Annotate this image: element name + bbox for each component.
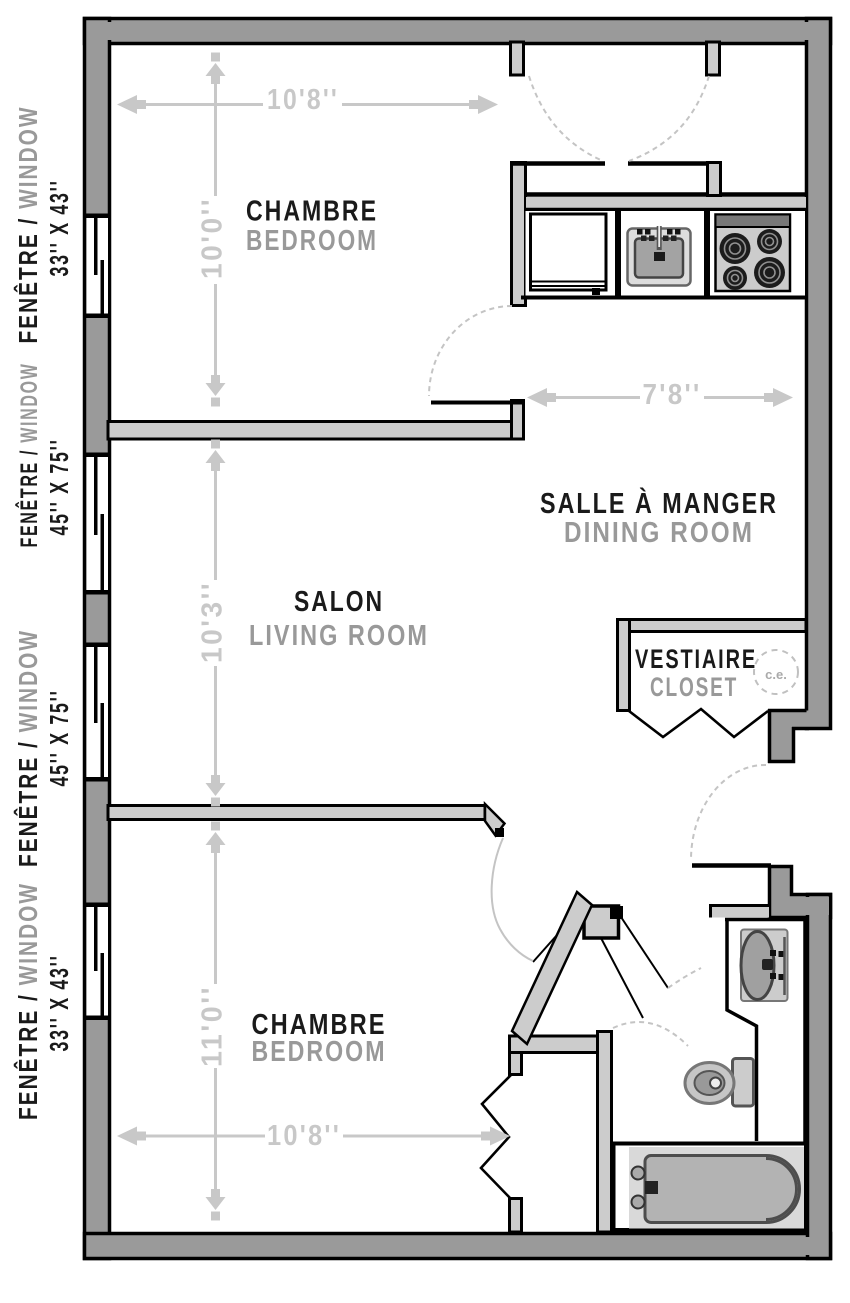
- svg-text:11'0'': 11'0'': [197, 985, 229, 1067]
- svg-text:10'3'': 10'3'': [197, 581, 229, 663]
- svg-text:FENÊTRE / WINDOW: FENÊTRE / WINDOW: [13, 882, 43, 1120]
- svg-text:45'' X 75'': 45'' X 75'': [44, 439, 74, 536]
- svg-text:SALLE À MANGER: SALLE À MANGER: [540, 486, 778, 520]
- svg-text:FENÊTRE / WINDOW: FENÊTRE / WINDOW: [15, 363, 43, 548]
- svg-text:CLOSET: CLOSET: [650, 672, 738, 702]
- svg-text:SALON: SALON: [294, 586, 384, 618]
- svg-text:10'8'': 10'8'': [267, 1120, 341, 1152]
- svg-text:BEDROOM: BEDROOM: [252, 1036, 387, 1068]
- svg-text:33'' X 43'': 33'' X 43'': [44, 180, 74, 277]
- svg-text:10'8'': 10'8'': [267, 84, 339, 116]
- svg-text:33'' X 43'': 33'' X 43'': [44, 955, 74, 1052]
- svg-text:FENÊTRE / WINDOW: FENÊTRE / WINDOW: [13, 106, 43, 344]
- svg-text:7'8'': 7'8'': [643, 379, 702, 411]
- svg-text:10'0'': 10'0'': [197, 197, 229, 279]
- svg-text:LIVING ROOM: LIVING ROOM: [249, 620, 429, 652]
- svg-text:BEDROOM: BEDROOM: [246, 225, 378, 257]
- svg-text:VESTIAIRE: VESTIAIRE: [635, 644, 757, 674]
- svg-text:DINING ROOM: DINING ROOM: [564, 517, 754, 549]
- svg-text:FENÊTRE / WINDOW: FENÊTRE / WINDOW: [13, 629, 43, 867]
- svg-text:c.e.: c.e.: [765, 667, 787, 682]
- svg-text:CHAMBRE: CHAMBRE: [246, 196, 378, 228]
- svg-text:45'' X 75'': 45'' X 75'': [44, 690, 74, 787]
